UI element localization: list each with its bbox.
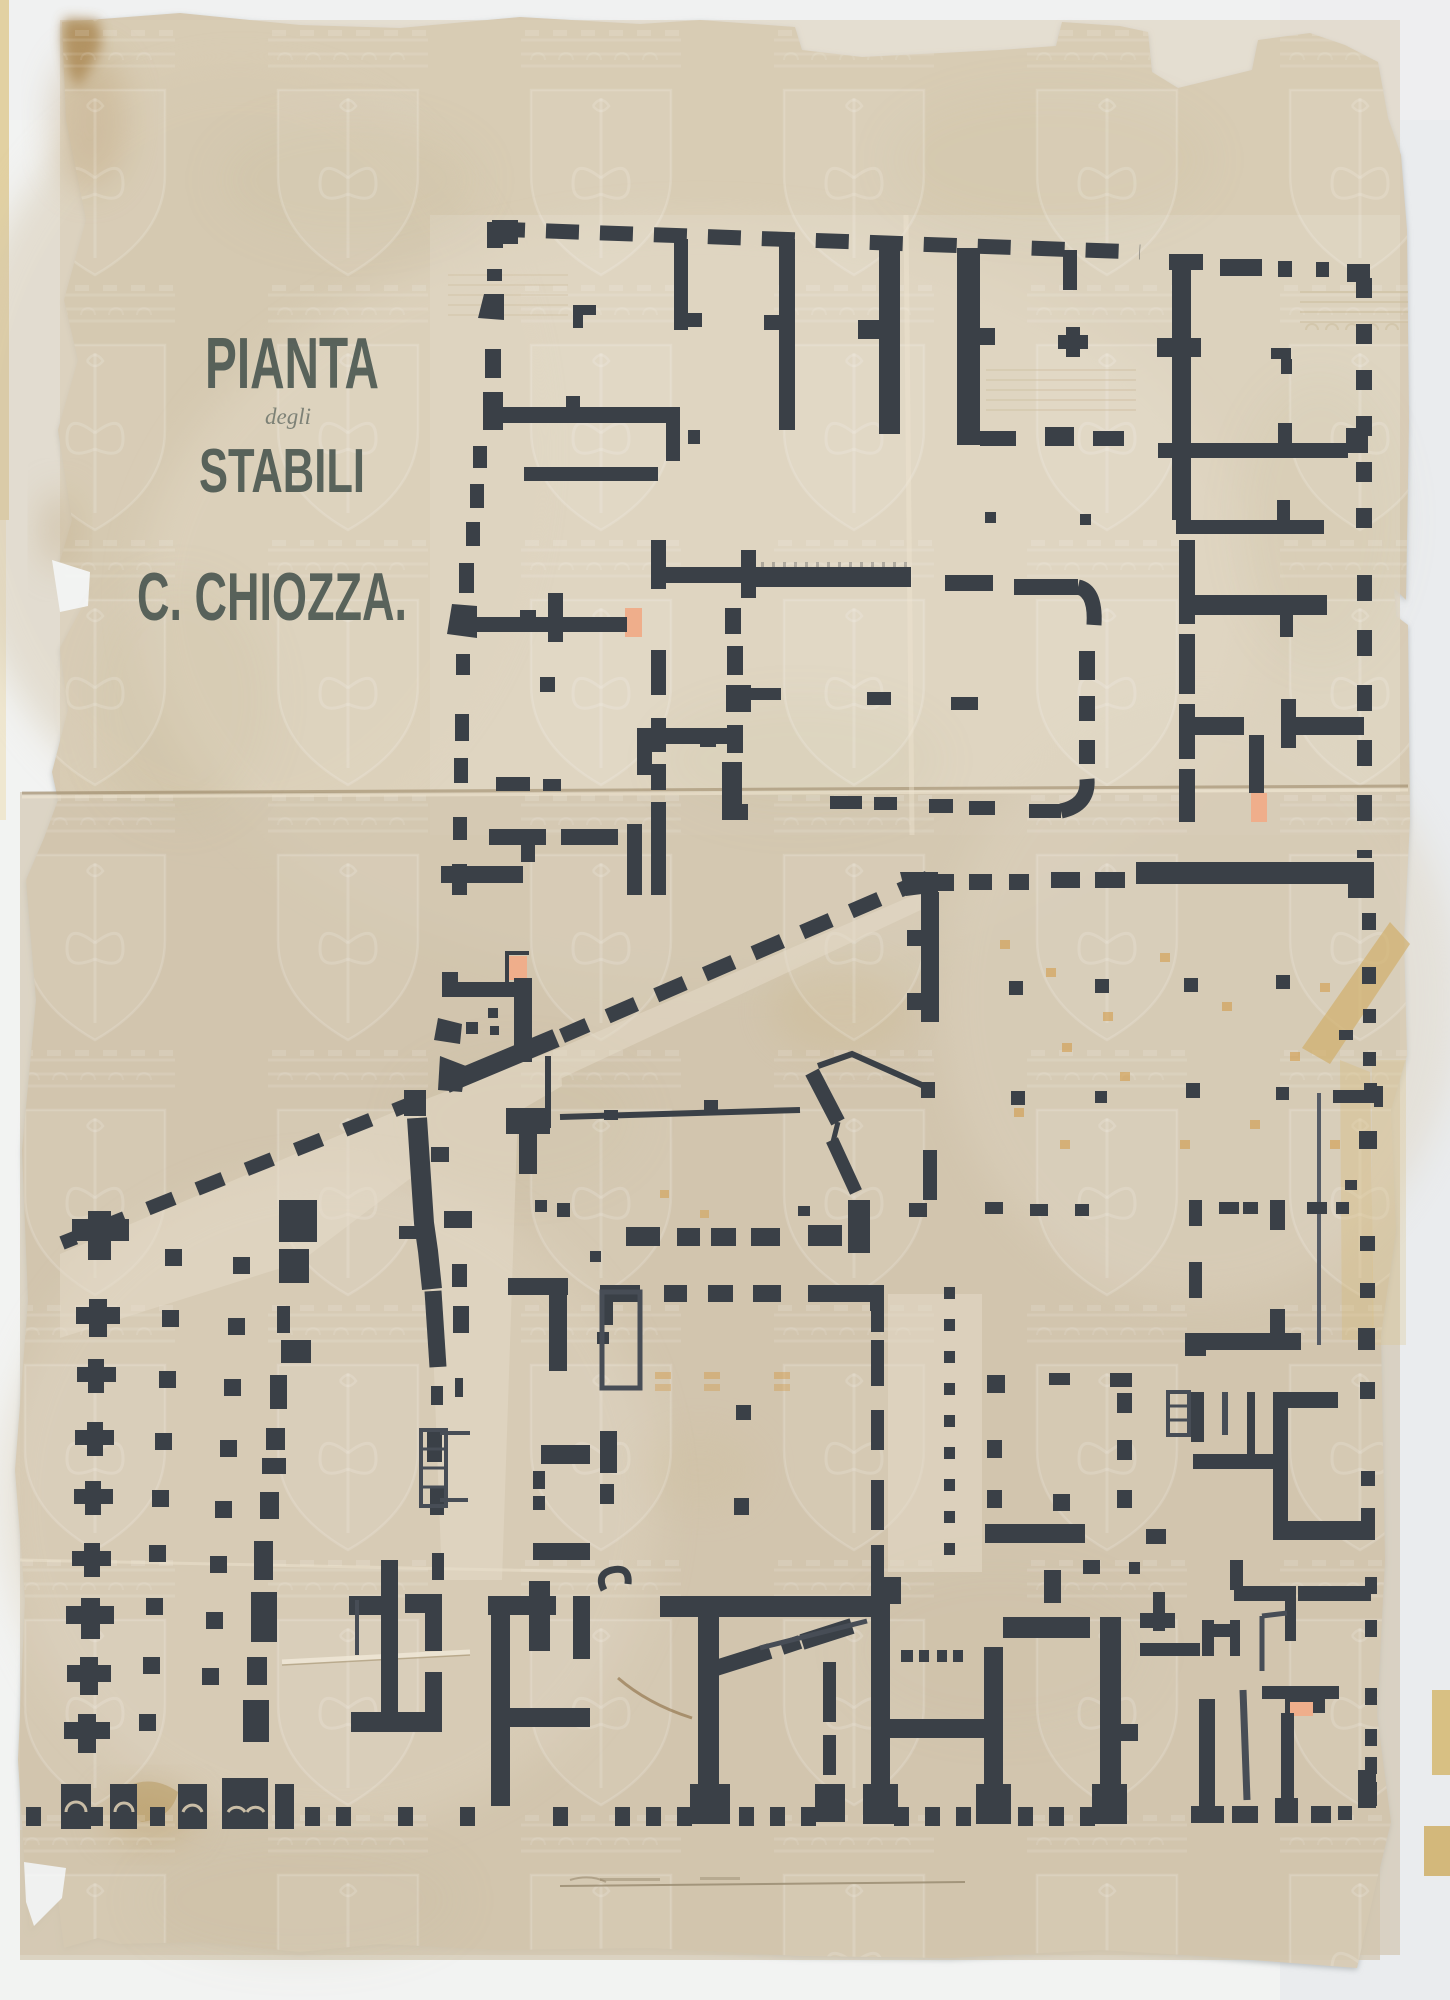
svg-text:C. CHIOZZA.: C. CHIOZZA.: [137, 559, 407, 635]
svg-text:PIANTA: PIANTA: [205, 324, 379, 404]
svg-text:degli: degli: [265, 404, 311, 429]
svg-text:STABILI: STABILI: [199, 437, 365, 506]
